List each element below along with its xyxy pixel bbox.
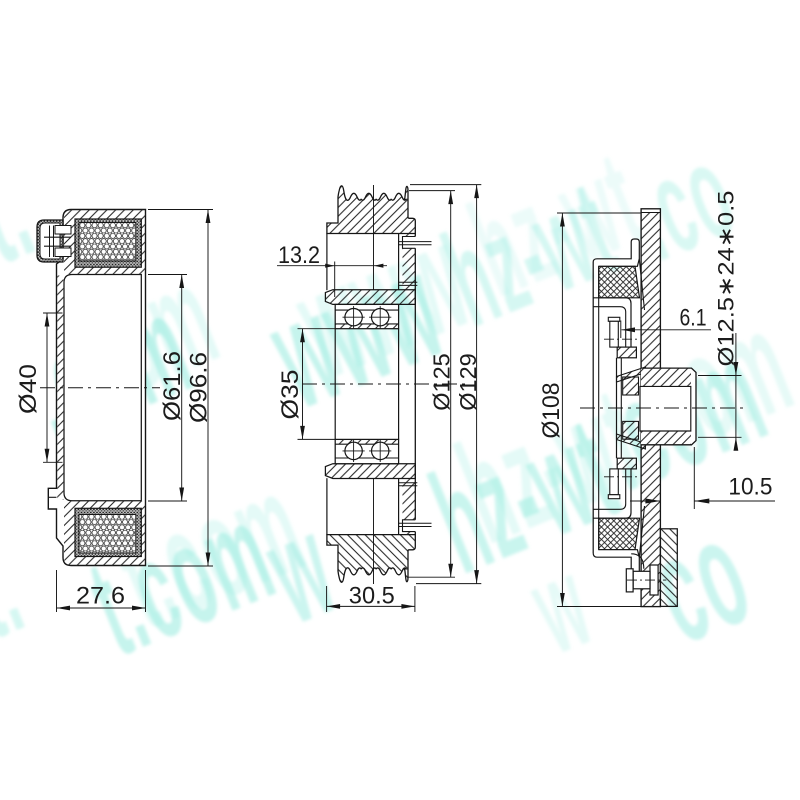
- svg-text:Ø35: Ø35: [277, 370, 304, 420]
- svg-text:Ø61.6: Ø61.6: [159, 351, 186, 421]
- svg-text:Ø12.5∗24∗0.5: Ø12.5∗24∗0.5: [714, 191, 739, 367]
- svg-text:30.5: 30.5: [349, 583, 395, 610]
- svg-text:13.2: 13.2: [278, 242, 320, 269]
- svg-text:Ø40: Ø40: [15, 364, 42, 414]
- svg-text:27.6: 27.6: [76, 583, 125, 610]
- svg-text:Ø108: Ø108: [538, 383, 565, 439]
- svg-text:Ø96.6: Ø96.6: [186, 352, 213, 423]
- svg-text:Ø129: Ø129: [455, 353, 481, 411]
- svg-text:Ø125: Ø125: [428, 353, 454, 411]
- svg-text:6.1: 6.1: [680, 305, 707, 332]
- svg-text:10.5: 10.5: [728, 474, 772, 501]
